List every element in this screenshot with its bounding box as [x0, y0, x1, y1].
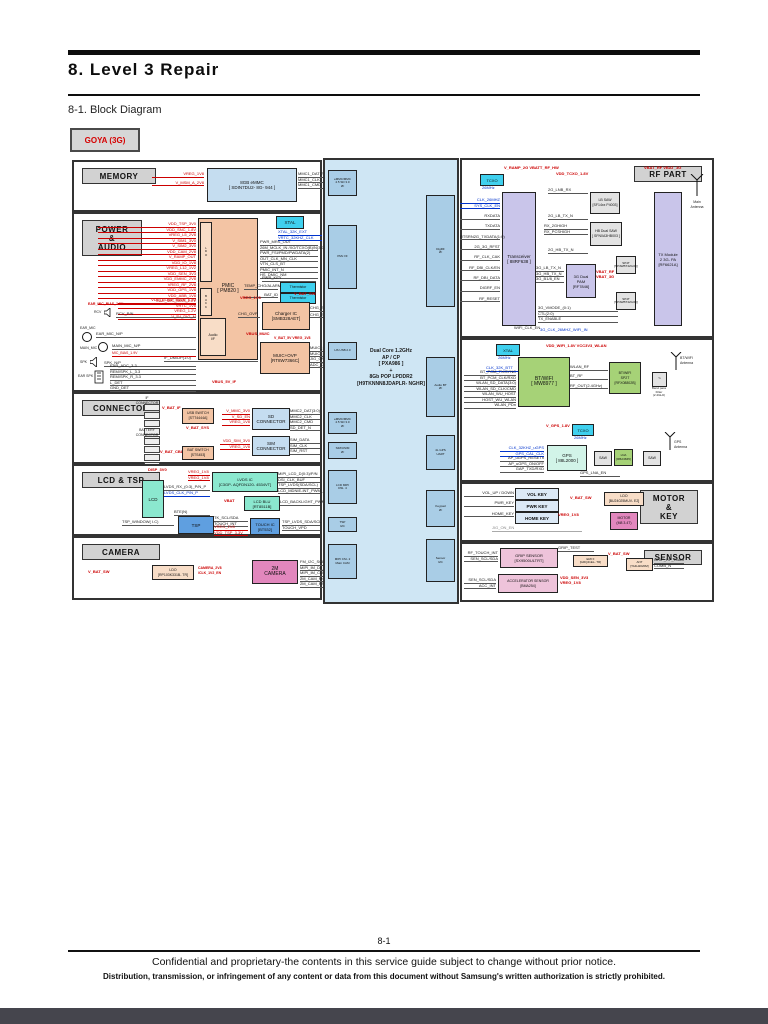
mic-bias-signal: MIC_BIAS_1.9V [112, 351, 196, 357]
home-key-block: HOME KEY [515, 512, 559, 524]
backlight-pwm-signal: LCD_BACKLIGHT_PWM [280, 500, 320, 506]
signal-label: RF_DBI_CLK/EN [460, 266, 500, 272]
cpu-if-gps: 4L GPS UART [426, 435, 455, 470]
rf-tcxo-freq: 26MHz [482, 186, 495, 191]
signal-label: VOL_UP / DOWN [464, 491, 514, 497]
signal-label: RF_DBI_DATA [460, 276, 500, 282]
signal-label: RF_OUT(2.4GHz) [570, 384, 608, 390]
footer-confidential: Confidential and proprietary-the content… [0, 956, 768, 968]
ear-mic-label: EAR_MIC [80, 326, 96, 331]
lb-tx-signal: 2G_LB_TX_N [548, 214, 588, 220]
btwifi-block: BT/WIFI [ MW8977 ] [518, 357, 570, 407]
pam-signals: 3G_LB_TX_N3G_HB_TX_N3G_B1/8_EN [536, 266, 564, 282]
vbus-5v-if-label: VBUS_5V_IF [212, 380, 236, 385]
cpu-if-cam: MIPI CSI- 2 Main CAM [328, 544, 357, 579]
sd-rails: V_MMC_3V0V_SD_ENVREG_1V8 [222, 409, 250, 424]
v-bat-if-label: V_BAT_IF [162, 406, 181, 411]
grip-ant-signals: GRIP_RF_TouchCOMB_N [654, 558, 684, 567]
tx-module-block: TX Module 2 3G- PA [RF6621A] [654, 192, 682, 326]
cpu-title: Dual Core 1.2GHz AP / CP [ PXA986 ] + 8G… [351, 348, 431, 387]
tsp-signals-black: TK_SCL/SDATOUCH_INT [214, 516, 248, 524]
wifi-rails-label: VDD_WIFI_1.8V VCC3V3_WLAN [546, 344, 606, 349]
signal-label: VREG_1V8 [222, 420, 250, 426]
camera-section: CAMERA V_BAT_SW LDO [RP103K331B- TR] CAM… [72, 536, 322, 600]
signal-label: VREG_1V8 [220, 445, 250, 451]
gps-vreg-label: V_GPS_1.8V [546, 424, 570, 429]
bpf-block: ~ [652, 372, 667, 387]
top-rule [68, 50, 700, 55]
charger-left-signal: CHG_OVP [238, 312, 260, 318]
lvds-clk-signal: LVDS_CLK_P/N_P [164, 491, 210, 497]
btwifi-left-signals: BT_PCM_TX/SYNCBT_PCM_CLK/RXDWLAN_SD_DATA… [464, 370, 516, 404]
signal-label: SEN_SCL/SDA [464, 557, 498, 563]
pmic-buck-sub: B U C K [200, 288, 212, 316]
bt-xtal-freq: 26MHz [498, 356, 511, 361]
main-antenna-icon [690, 174, 704, 196]
gps-saw2-block: SAW [643, 451, 661, 466]
battery-connector-label: BATTERY CONNECTOR [130, 428, 164, 437]
camera-vbat-label: V_BAT_SW [88, 570, 109, 575]
rf-rx-top-signal: 2G_LNB_RX [548, 188, 588, 194]
ear-mic-icon [82, 332, 92, 342]
cpu-if-bt: Audio BT I/F [426, 357, 455, 417]
gps-antenna-label: GPS Antenna [674, 440, 687, 449]
sd-signals: MMC2_DAT(3:0)MMC2_CLKMMC2_CMDSD_DET_N [290, 409, 320, 426]
disp-3v0-label: DISP_3V0 [148, 468, 167, 473]
sd-connector-block: SD CONNECTOR [252, 408, 290, 430]
main-antenna-label: Main Antenna [684, 200, 710, 209]
touch-signals: TSP_LVDS_SDA/SCLTOUCH_VPD [282, 520, 320, 530]
xtal-block: XTAL [276, 216, 304, 229]
rf-left-blue-signals: CLK_26MHZSYS_CLK_EN [460, 198, 500, 207]
wifi-clk-en-signal: WIFI_CLK_EN [514, 326, 540, 331]
rf-section: RF PART TCXO 26MHz V_RAMP_2G VBATT_RF_HW… [460, 158, 714, 338]
vol-key-block: VOL KEY [515, 488, 559, 500]
gps-blue-signals: CLK_32KHZ_uGPSGPS_CAL_CLK [500, 446, 544, 454]
memory-section: MEMORY 8GB eMMC [ SDIN7DU2- 8G- 944 ] VR… [72, 160, 322, 212]
emmc-block: 8GB eMMC [ SDIN7DU2- 8G- 944 ] [207, 168, 297, 202]
header-rule [68, 94, 700, 96]
rf-switch-1: SP4T [SP4WBT42G3Q] [616, 256, 636, 274]
sim-rails: VDD_SIM_3V0VREG_1V8 [220, 439, 250, 448]
signal-label: GAP_TXD/RXD [500, 467, 544, 473]
accel-left-signals: SEN_SCL/SDAACC_INT [464, 578, 496, 588]
tsp-window-signal: TSP_WINDOW( I.C) [122, 520, 174, 526]
charger-vreg-label: VREG_1V8 [240, 296, 261, 301]
signal-label: SIM_RST [290, 449, 320, 455]
rf-bottom-signals: 3G_VMODE_(0:1)CTL(2:0)TX_ENABLE [538, 306, 618, 320]
rf-vtcxo-label: VDD_TCXO_1.8V [556, 172, 588, 177]
pam-block: 3G Dual PAM [RF7846] [566, 264, 596, 298]
signal-label: ACC_INT [464, 584, 496, 590]
pmic-rails-1: VDD_TSP_3V0VDD_SNC_1.8VVREG_L5_2V8V_SIM1… [98, 222, 196, 294]
pwr-key-block: PWR KEY [515, 500, 559, 512]
lvds-rails: VREG_1V8VREG_1V8 [188, 470, 210, 480]
sp2t-block: BT/WIFI SP2T [RFX08802B] [609, 362, 641, 394]
pmic-ldo-sub: L D O [200, 222, 212, 282]
motor-key-section: MOTOR & KEY VOL_UP / DOWNPWR_KEYHOME_KEY… [460, 482, 714, 542]
footer-rule [68, 950, 700, 952]
accel-sensor-block: ACCELERATOR SENSOR [BMA254] [498, 574, 558, 593]
usb-switch-block: USB SWITCH [STT4444A] [182, 408, 214, 424]
motor-vbat-label: V_BAT_SW [570, 496, 591, 501]
camera-block: 2M CAMERA [252, 560, 298, 584]
rcv-signal: RCV_P/N [116, 312, 196, 318]
pmic-audio-sub: Audio I/F [200, 318, 226, 356]
grip-sensor-block: GRIP SENSOR [SX9500ULTRT] [500, 548, 558, 568]
wifi-clk-blue-signal: 3G_CLK_26MHZ_WIFI_IN [540, 328, 588, 333]
signal-label: SD_DET_N [290, 426, 320, 432]
cpu-if-usb: HS USB 2.0 [328, 342, 357, 360]
mipi-signals: MIPI_LCD_D(0:3)/P/NDSI_CLK_BUFTSP_LVDS(S… [278, 472, 320, 492]
motor-key-section-label: MOTOR & KEY [640, 490, 698, 524]
charger-vbat-label: V_BAT_SW [294, 292, 315, 297]
signal-label: BT_RF [570, 374, 608, 380]
pmic-cpu-signals: PWR_MRS_OUT26M_MCLK_IN /XO/TCXO(B)/N(3:0… [260, 240, 318, 274]
lcd-block: LCD [142, 480, 164, 518]
section-title: 8-1. Block Diagram [68, 104, 162, 116]
ear-mic-signal: EAR_MIC_N/P [96, 332, 196, 338]
signal-label: RF_CLK_CAK [460, 255, 500, 261]
model-badge: GOYA (3G) [70, 128, 140, 152]
rcv-label: RCV [94, 310, 101, 315]
hb-saw-block: HB Dual SAW [ SFN0A3HB003 ] [590, 222, 622, 246]
bat-switch-block: BAT SWITCH [STS453] [182, 446, 214, 460]
cpu-section: Dual Core 1.2GHz AP / CP [ PXA986 ] + 8G… [323, 158, 459, 604]
lb-saw-block: LB SAW [SF14xx P4003] [590, 192, 620, 214]
signal-label: RXDATA [460, 214, 500, 220]
camera-ldo-block: LDO [RP103K331B- TR] [152, 565, 194, 580]
rf-left-signals: RXDATATXDATARTSRN2G_TXDATA(1:0)2G_3G_RFS… [460, 214, 500, 302]
lcd-blu-block: LCD BLU [RT8511B] [244, 496, 280, 511]
speaker-icon [90, 357, 100, 367]
lcd-tsp-section: LCD & TSP DISP_3V0 LCD VREG_1V8VREG_1V8 … [72, 464, 322, 536]
sim-connector-block: SIM CONNECTOR [252, 436, 290, 456]
vbat-label: VBAT [224, 499, 235, 504]
spk-label: SPK [80, 360, 87, 365]
tsp-signals-red: VREG_1V8VDD_TSP_3.3V [214, 525, 248, 533]
camera-section-label: CAMERA [82, 544, 160, 560]
grip-test-signal: GRIP_TEST [558, 546, 594, 552]
signal-label: TXDATA [460, 224, 500, 230]
signal-label: TOUCH_VPD [282, 526, 320, 532]
signal-label: PWR_KEY [464, 501, 514, 507]
grip-vbat-label: V_BAT_SW [608, 552, 629, 557]
bte-signal: BTE(N) [174, 510, 210, 516]
touch-ic-block: TOUCH IC [BT532] [250, 518, 280, 535]
cpu-if-tsp: TSP I2C [328, 517, 357, 532]
signal-label: COMB_N [654, 564, 684, 570]
signal-label: RF_RESET [460, 297, 500, 303]
cpu-if-sim: SIM/USIM I/F [328, 442, 357, 459]
key-signals: VOL_UP / DOWNPWR_KEYHOME_KEY [464, 491, 514, 517]
power-audio-section: POWER & AUDIO PMIC [ PM820 ] L D O B U C… [72, 212, 322, 392]
cpu-if-emmc2: eMMC/MMC 4.5 SD 3.0 I/F [328, 412, 357, 434]
grip-left-signals: RF_TOUCH_INTSEN_SCL/SDA [464, 551, 498, 561]
ear-jack-icon [94, 370, 104, 384]
gps-saw1-block: SAW [594, 451, 612, 466]
motor-ldo-block: LDO [BU24025MUV- E2] [604, 492, 644, 506]
signal-label: RX_PCSHIGH [544, 230, 588, 236]
main-mic-label: MAIN_MIC [80, 346, 97, 351]
sensor-section: SENSOR GRIP SENSOR [SX9500ULTRT] RF_TOUC… [460, 542, 714, 602]
motor-block: MOTOR (M8 3.4T) [610, 512, 638, 530]
hb-tx-signal: 2G_HB_TX_N [548, 248, 588, 254]
cpu-if-pmx: PMx I/F [328, 225, 357, 289]
signal-label: 2G_3G_RFST [460, 245, 500, 251]
ear-jack-signals: EAR_ADC_3.3REM/SPK_L_3.3REM/SPK_R_3.3L_D… [110, 364, 196, 388]
gps-lna-block: LNA [RBA3845] [614, 449, 633, 466]
signal-label: V_MSM_A_2V8 [152, 181, 204, 187]
grip-ant-block: ANT [TA4H2020M] [626, 558, 653, 571]
service-manual-page: 8. Level 3 Repair 8-1. Block Diagram GOY… [0, 0, 768, 1024]
transceiver-block: Transceiver [ 88RF638 ] [502, 192, 536, 326]
v-bat-sys-label: V_BAT_SYS [186, 426, 209, 431]
grip-emi-block: EMI F [GRQ41EL- TR] [573, 555, 608, 567]
gps-tcxo-freq: 26MHz [574, 436, 587, 441]
cpu-if-key: Keypad I/F [426, 490, 455, 527]
muic-block: MUIC+OVP [RT8W7366C] [260, 342, 310, 374]
motor-vreg-label: VREG_1V8 [558, 513, 579, 518]
signal-label: DIGRF_EN [460, 286, 500, 292]
signal-label: TEMP_CHG/ALARM [244, 284, 278, 290]
vbus-muic-label: VBUS_MUIC [246, 332, 270, 337]
bottom-bar [0, 1008, 768, 1024]
camera-en-label: CAMERA_2V8 /CLK_1V2_EN [198, 566, 222, 575]
lvds-ic-block: LVDS IC [C3GP- AQFDN120- 4534VT] [212, 472, 278, 492]
signal-label: WLAN_RF [570, 365, 608, 371]
connector-section: CONNECTOR IF CONNECTOR V_BAT_IF USB SWIT… [72, 392, 322, 464]
bpf-label: Band pass Filter (2.4GHz) [646, 387, 672, 398]
ear-jack-label: EAR SPK [78, 374, 93, 379]
signal-label: WLAN_PDn [464, 403, 516, 409]
page-number: 8-1 [0, 936, 768, 946]
signal-label: VREG_1V8 [152, 172, 204, 178]
xtal-signals: XTAL_32K_EXTVRTC_32KHZ_CLK [278, 230, 322, 239]
emmc-rails: VREG_1V8V_MSM_A_2V8 [152, 172, 204, 186]
sim-signals: SIM_DATASIM_CLKSIM_RST [290, 438, 320, 451]
chapter-title: 8. Level 3 Repair [68, 60, 219, 80]
signal-label: SYS_CLK_EN [460, 204, 500, 210]
gps-block: GPS [ 88L2000 ] [547, 445, 587, 471]
btwifi-antenna-label: BT/WIFI Antenna [680, 356, 693, 365]
main-mic-signal: MAIN_MIC_N/P [112, 344, 196, 350]
cpu-if-emmc1: eMMC/MMC 4.5 SD 3.0 I/F [328, 170, 357, 196]
signal-label: HOME_KEY [464, 512, 514, 518]
gps-lna-en-signal: GPS_LNA_EN [580, 471, 620, 477]
hb-signals: RX_2GHIGHRX_PCSHIGH [544, 224, 588, 234]
cpu-if-sensor: Sensor I2C [426, 539, 455, 582]
btwifi-mid-signals: WLAN_RFBT_RFRF_OUT(2.4GHz) [570, 365, 608, 389]
rf-vramp-label: V_RAMP_2G VBATT_RF_HW [504, 166, 559, 171]
jig-on-signal: JIG_ON_EN [492, 526, 582, 532]
memory-section-label: MEMORY [82, 168, 156, 184]
signal-label: LCD_MDNIE-INT_PWM_W [278, 489, 320, 495]
signal-label: VREG_1V8 [188, 476, 210, 482]
charger-ic-block: Charger IC [SMB328AET] [262, 302, 310, 330]
pam-rails-label: VBAT_RF VBAT_3G [596, 270, 614, 279]
rf-switch-2: SP4T [SP4WBT42G3Q] [616, 292, 636, 310]
tsp-block: TSP [178, 516, 214, 534]
signal-label: RTSRN2G_TXDATA(1:0) [460, 235, 500, 241]
cpu-if-digrf: DigRF I/F [426, 195, 455, 307]
cpu-if-lcd: LCD MIPI DSI- 4 [328, 470, 357, 504]
muic-rails-label: V_BAT_5V VREG_1V8 [274, 336, 311, 341]
signal-label: GND_DET [110, 386, 196, 392]
main-mic-icon [98, 342, 108, 352]
pwr-key-signal: PWR_KEY [262, 276, 316, 282]
rf-vbat-label: VBAT_RF VBAT_3G [644, 166, 681, 171]
ear-mic-bias-label: EAR_MIC_BIAS_2.2V [88, 302, 123, 307]
accel-rails-label: VDD_SEN_3V3 VREG_1V8 [560, 576, 588, 585]
signal-label: 3G_B1/8_EN [536, 277, 564, 283]
signal-label: TX_ENABLE [538, 317, 618, 323]
gps-signals: AP_uGPS_RESETnAP_uGPS_ON/OFFGAP_TXD/RXD [500, 456, 544, 469]
v-bat-cbl-label: V_BAT_CBL [160, 450, 183, 455]
btwifi-gps-section: XTAL 26MHz CLK_32K_BTT VDD_WIFI_1.8V VCC… [460, 338, 714, 482]
footer-distribution: Distribution, transmission, or infringem… [0, 972, 768, 981]
receiver-icon [104, 308, 113, 317]
